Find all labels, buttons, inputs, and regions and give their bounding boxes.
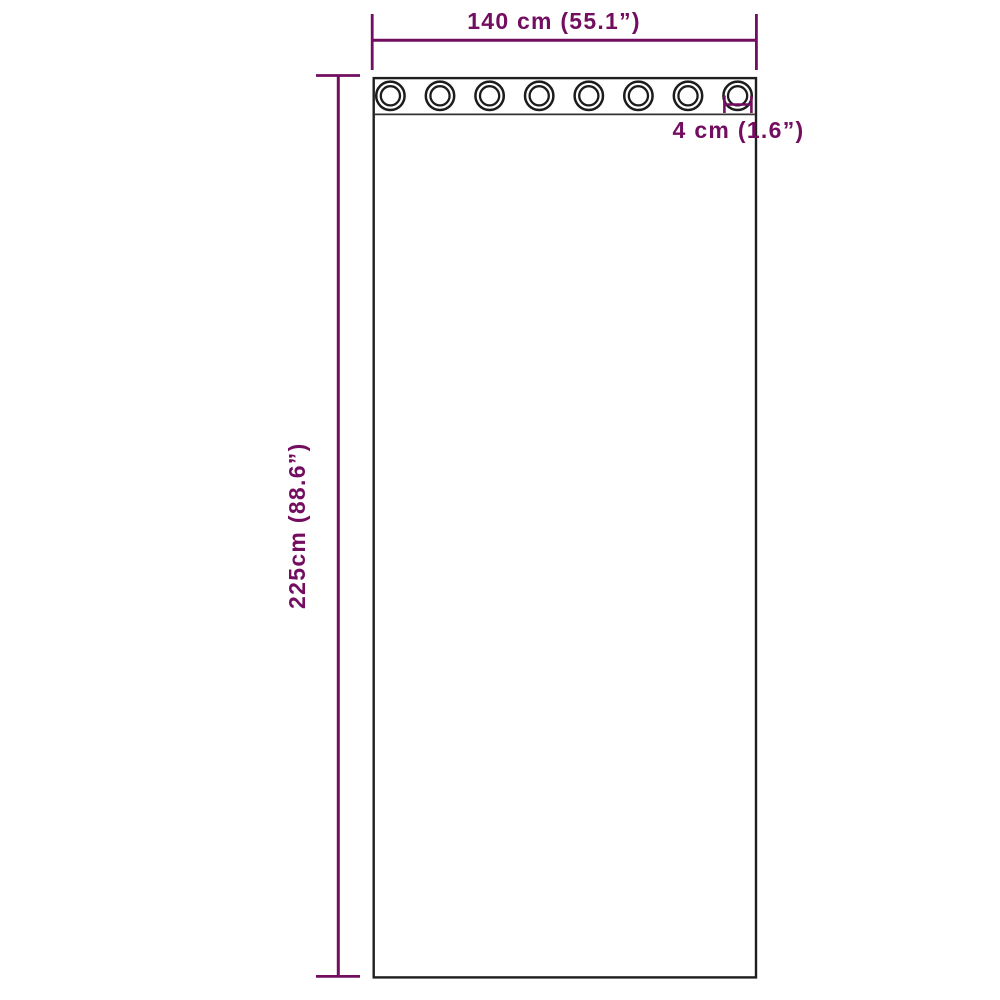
svg-text:4 cm (1.6”): 4 cm (1.6”) [673, 117, 805, 143]
svg-text:225cm (88.6”): 225cm (88.6”) [284, 442, 310, 609]
svg-text:140 cm (55.1”): 140 cm (55.1”) [467, 8, 640, 34]
